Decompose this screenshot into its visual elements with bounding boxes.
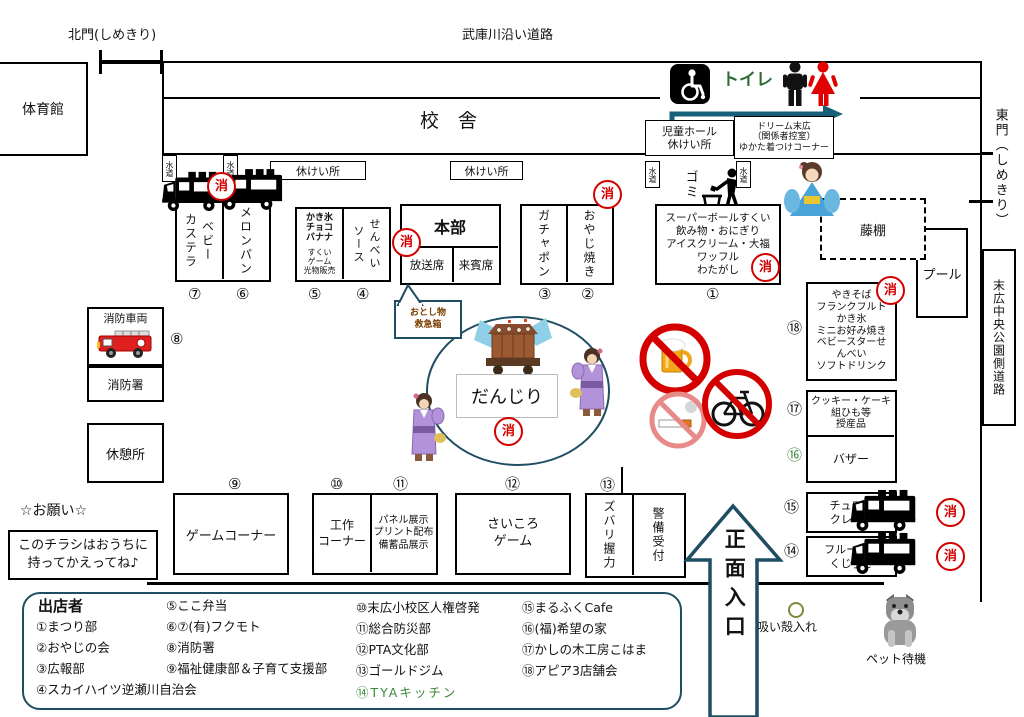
booth-4-number: ④ bbox=[356, 287, 369, 302]
kitchen-car-icon-3 bbox=[848, 488, 918, 532]
booth-5-label-bottom: すくい ゲーム 光物販売 bbox=[304, 248, 336, 276]
water-tap-box-3: 水道 bbox=[645, 161, 660, 188]
booth-14-number: ⑭ bbox=[784, 544, 799, 559]
booth-1-number: ① bbox=[706, 287, 719, 302]
booth-3: ガチャポン bbox=[522, 206, 568, 282]
booth-15-number: ⑮ bbox=[784, 500, 799, 515]
booth-17-16: クッキー・ケーキ 組ひも等 授産品 バザー bbox=[806, 390, 897, 483]
booth-13-security: ズバリ握力 警備受付 bbox=[585, 493, 686, 578]
yukata-girl-icon-left bbox=[402, 392, 446, 466]
fire-vehicle-label: 消防車両 bbox=[89, 310, 162, 326]
legend-item: ⑤ここ弁当 bbox=[166, 598, 227, 613]
kids-hall-label: 児童ホール 休けい所 bbox=[662, 125, 717, 151]
women-restroom-icon bbox=[808, 61, 838, 107]
fire-extinguisher-mark: 消 bbox=[936, 542, 965, 571]
legend-item: ⑧消防署 bbox=[166, 640, 215, 655]
booth-11-number: ⑪ bbox=[393, 477, 408, 492]
booth-3-2: ガチャポン おやじ焼き bbox=[520, 204, 614, 285]
hq-guest-label: 来賓席 bbox=[459, 257, 494, 273]
booth-2-label: おやじ焼き bbox=[581, 209, 598, 279]
water-tap-label: 水道 bbox=[647, 167, 658, 183]
booth-9-number: ⑨ bbox=[228, 477, 241, 492]
fire-extinguisher-mark: 消 bbox=[494, 417, 523, 446]
fire-extinguisher-mark: 消 bbox=[207, 172, 236, 201]
school-left-line bbox=[162, 62, 164, 98]
legend-item: ⑩末広小校区人権啓発 bbox=[356, 600, 480, 615]
booth-13: ズバリ握力 bbox=[587, 495, 634, 575]
legend-item: ⑱アピア3店舗会 bbox=[522, 663, 617, 678]
wheelchair-icon bbox=[670, 64, 710, 104]
booth-17-label: クッキー・ケーキ 組ひも等 授産品 bbox=[811, 396, 891, 431]
main-entrance-label: 正面入口 bbox=[721, 528, 746, 713]
booth-16-number: ⑯ bbox=[787, 448, 802, 463]
hq-broadcast-label: 放送席 bbox=[410, 257, 445, 273]
booth-5: かき氷 チョコ バナナ すくい ゲーム 光物販売 bbox=[297, 209, 344, 279]
request-note: このチラシはおうちに 持ってかえってね♪ bbox=[18, 537, 148, 573]
kimono-woman-icon bbox=[780, 160, 844, 218]
toilet-label: トイレ bbox=[722, 70, 773, 90]
fire-extinguisher-mark: 消 bbox=[392, 228, 421, 257]
gym-box: 体育館 bbox=[0, 62, 88, 156]
rest-house-box: 休憩所 bbox=[87, 423, 164, 483]
legend-item: ⑰かしの木工房こはま bbox=[522, 642, 647, 657]
booth-17-number: ⑰ bbox=[787, 402, 802, 417]
legend-item: ⑥⑦(有)フクモト bbox=[166, 619, 261, 634]
booth-18-label: やきそば フランクフルト かき氷 ミニお好み焼き ベビースターせ んべい ソフト… bbox=[817, 290, 887, 373]
booth-11: パネル展示 プリント配布 備蓄品展示 bbox=[372, 495, 435, 572]
vendor-legend-title: 出店者 bbox=[38, 597, 83, 615]
booth-8-number: ⑧ bbox=[170, 332, 183, 347]
school-label: 校 舎 bbox=[420, 110, 477, 133]
booth-5-number: ⑤ bbox=[308, 287, 321, 302]
north-gate-segment bbox=[100, 60, 162, 64]
booth-16-label: バザー bbox=[833, 450, 869, 467]
fire-extinguisher-mark: 消 bbox=[751, 253, 780, 282]
booth-5-4: かき氷 チョコ バナナ すくい ゲーム 光物販売 ソース せんべい bbox=[295, 207, 391, 282]
booth-9: ゲームコーナー bbox=[173, 493, 289, 575]
booth-7-label: ベビー カステラ bbox=[183, 213, 217, 269]
booth-7-6: ベビー カステラ メロンパン bbox=[175, 201, 271, 282]
booth-2-number: ② bbox=[581, 287, 594, 302]
ashtray-circle-icon bbox=[788, 602, 804, 618]
booth-13-label: ズバリ握力 bbox=[601, 500, 618, 570]
booth-16: バザー bbox=[808, 437, 894, 480]
lost-found-pointer bbox=[396, 284, 426, 306]
legend-item: ②おやじの会 bbox=[36, 640, 110, 655]
legend-item: ⑮まるふくCafe bbox=[522, 600, 613, 615]
booth-4-label: ソース せんべい bbox=[350, 218, 382, 270]
security-divider-line bbox=[621, 467, 623, 494]
school-building-box bbox=[162, 97, 982, 155]
legend-item: ⑫PTA文化部 bbox=[356, 642, 429, 657]
fire-extinguisher-mark: 消 bbox=[876, 276, 905, 305]
danjiri-label-box: だんじり bbox=[456, 374, 558, 418]
legend-item-tya-kitchen: ⑭TYAキッチン bbox=[356, 685, 457, 700]
booth-10: 工作 コーナー bbox=[314, 495, 372, 572]
booth-6: メロンパン bbox=[224, 203, 268, 279]
no-bicycle-icon bbox=[702, 368, 772, 440]
fire-extinguisher-mark: 消 bbox=[593, 180, 622, 209]
no-alcohol-icon bbox=[638, 322, 712, 396]
pet-waiting-label: ペット待機 bbox=[866, 652, 926, 666]
east-gate-tick-bottom bbox=[969, 200, 993, 203]
pet-dog-icon bbox=[872, 592, 928, 652]
request-note-box: このチラシはおうちに 持ってかえってね♪ bbox=[8, 530, 158, 580]
kids-hall-box: 児童ホール 休けい所 bbox=[645, 120, 734, 156]
booth-10-number: ⑩ bbox=[330, 477, 343, 492]
fire-dept-label: 消防署 bbox=[107, 376, 143, 393]
booth-10-11: 工作 コーナー パネル展示 プリント配布 備蓄品展示 bbox=[312, 493, 438, 575]
hq-label: 本部 bbox=[434, 214, 466, 238]
pergola-label: 藤棚 bbox=[860, 220, 886, 239]
fire-dept-box: 消防署 bbox=[87, 366, 164, 402]
rest-house-label: 休憩所 bbox=[106, 444, 145, 463]
legend-item: ⑪総合防災部 bbox=[356, 621, 431, 636]
booth-3-label: ガチャポン bbox=[536, 209, 553, 279]
men-restroom-icon bbox=[782, 61, 808, 107]
booth-18-number: ⑱ bbox=[787, 321, 802, 336]
booth-12-number: ⑫ bbox=[505, 477, 520, 492]
fire-vehicle-box: 消防車両 bbox=[87, 307, 164, 366]
rest-area-box-1: 休けい所 bbox=[270, 161, 366, 180]
booth-6-number: ⑥ bbox=[236, 287, 249, 302]
booth-4: ソース せんべい bbox=[344, 209, 388, 279]
legend-item: ⑯(福)希望の家 bbox=[522, 621, 607, 636]
pool-label: プール bbox=[922, 264, 961, 283]
booth-11-label: パネル展示 プリント配布 備蓄品展示 bbox=[374, 515, 434, 553]
booth-13-number: ⑬ bbox=[600, 478, 615, 493]
security-booth: 警備受付 bbox=[634, 495, 683, 575]
booth-2: おやじ焼き bbox=[568, 206, 611, 282]
booth-10-label: 工作 コーナー bbox=[318, 518, 366, 549]
side-road-label: 末広中央公園側道路 bbox=[991, 279, 1008, 396]
booth-7-number: ⑦ bbox=[188, 287, 201, 302]
dressing-room-box: ドリーム末広 （関係者控室） ゆかた着つけコーナー bbox=[734, 116, 834, 159]
booth-12-label: さいころ ゲーム bbox=[487, 517, 539, 551]
booth-17: クッキー・ケーキ 組ひも等 授産品 bbox=[808, 392, 894, 437]
north-gate-label: 北門(しめきり) bbox=[68, 28, 156, 44]
legend-item: ⑨福祉健康部＆子育て支援部 bbox=[166, 661, 327, 676]
rest-area-label: 休けい所 bbox=[465, 163, 509, 179]
fire-engine-icon bbox=[97, 325, 155, 361]
north-gate-tick-left bbox=[99, 50, 102, 74]
gym-label: 体育館 bbox=[22, 99, 64, 119]
danjiri-float-icon bbox=[472, 318, 554, 376]
top-road-line bbox=[100, 61, 982, 63]
dressing-room-label: ドリーム末広 （関係者控室） ゆかた着つけコーナー bbox=[739, 122, 829, 153]
rest-area-label: 休けい所 bbox=[296, 163, 340, 179]
security-label: 警備受付 bbox=[650, 507, 667, 563]
legend-item: ③広報部 bbox=[36, 661, 85, 676]
hq-guest: 来賓席 bbox=[454, 248, 498, 282]
fire-extinguisher-mark: 消 bbox=[936, 498, 965, 527]
legend-item: ④スカイハイツ逆瀬川自治会 bbox=[36, 682, 197, 697]
south-boundary-left bbox=[147, 582, 710, 585]
lost-found-label: おとし物 救急箱 bbox=[410, 308, 446, 331]
legend-item: ⑬ゴールドジム bbox=[356, 663, 444, 678]
booth-5-label-top: かき氷 チョコ バナナ bbox=[306, 213, 333, 244]
top-road-label: 武庫川沿い道路 bbox=[462, 28, 553, 44]
festival-map: 北門(しめきり) 武庫川沿い道路 体育館 校 舎 東門（しめきり） 末広中央公園… bbox=[0, 0, 1024, 717]
danjiri-label: だんじり bbox=[471, 383, 543, 409]
kitchen-car-icon-4 bbox=[848, 531, 918, 575]
booth-6-label: メロンパン bbox=[238, 206, 255, 276]
booth-7: ベビー カステラ bbox=[177, 203, 224, 279]
request-title: ☆お願い☆ bbox=[20, 503, 87, 520]
booth-3-number: ③ bbox=[538, 287, 551, 302]
booth-12: さいころ ゲーム bbox=[455, 493, 571, 575]
legend-item: ①まつり部 bbox=[36, 619, 97, 634]
side-road-box: 末広中央公園側道路 bbox=[982, 249, 1016, 426]
yukata-girl-icon-right bbox=[570, 347, 614, 421]
rest-area-box-2: 休けい所 bbox=[450, 161, 523, 180]
booth-9-label: ゲームコーナー bbox=[186, 525, 277, 544]
